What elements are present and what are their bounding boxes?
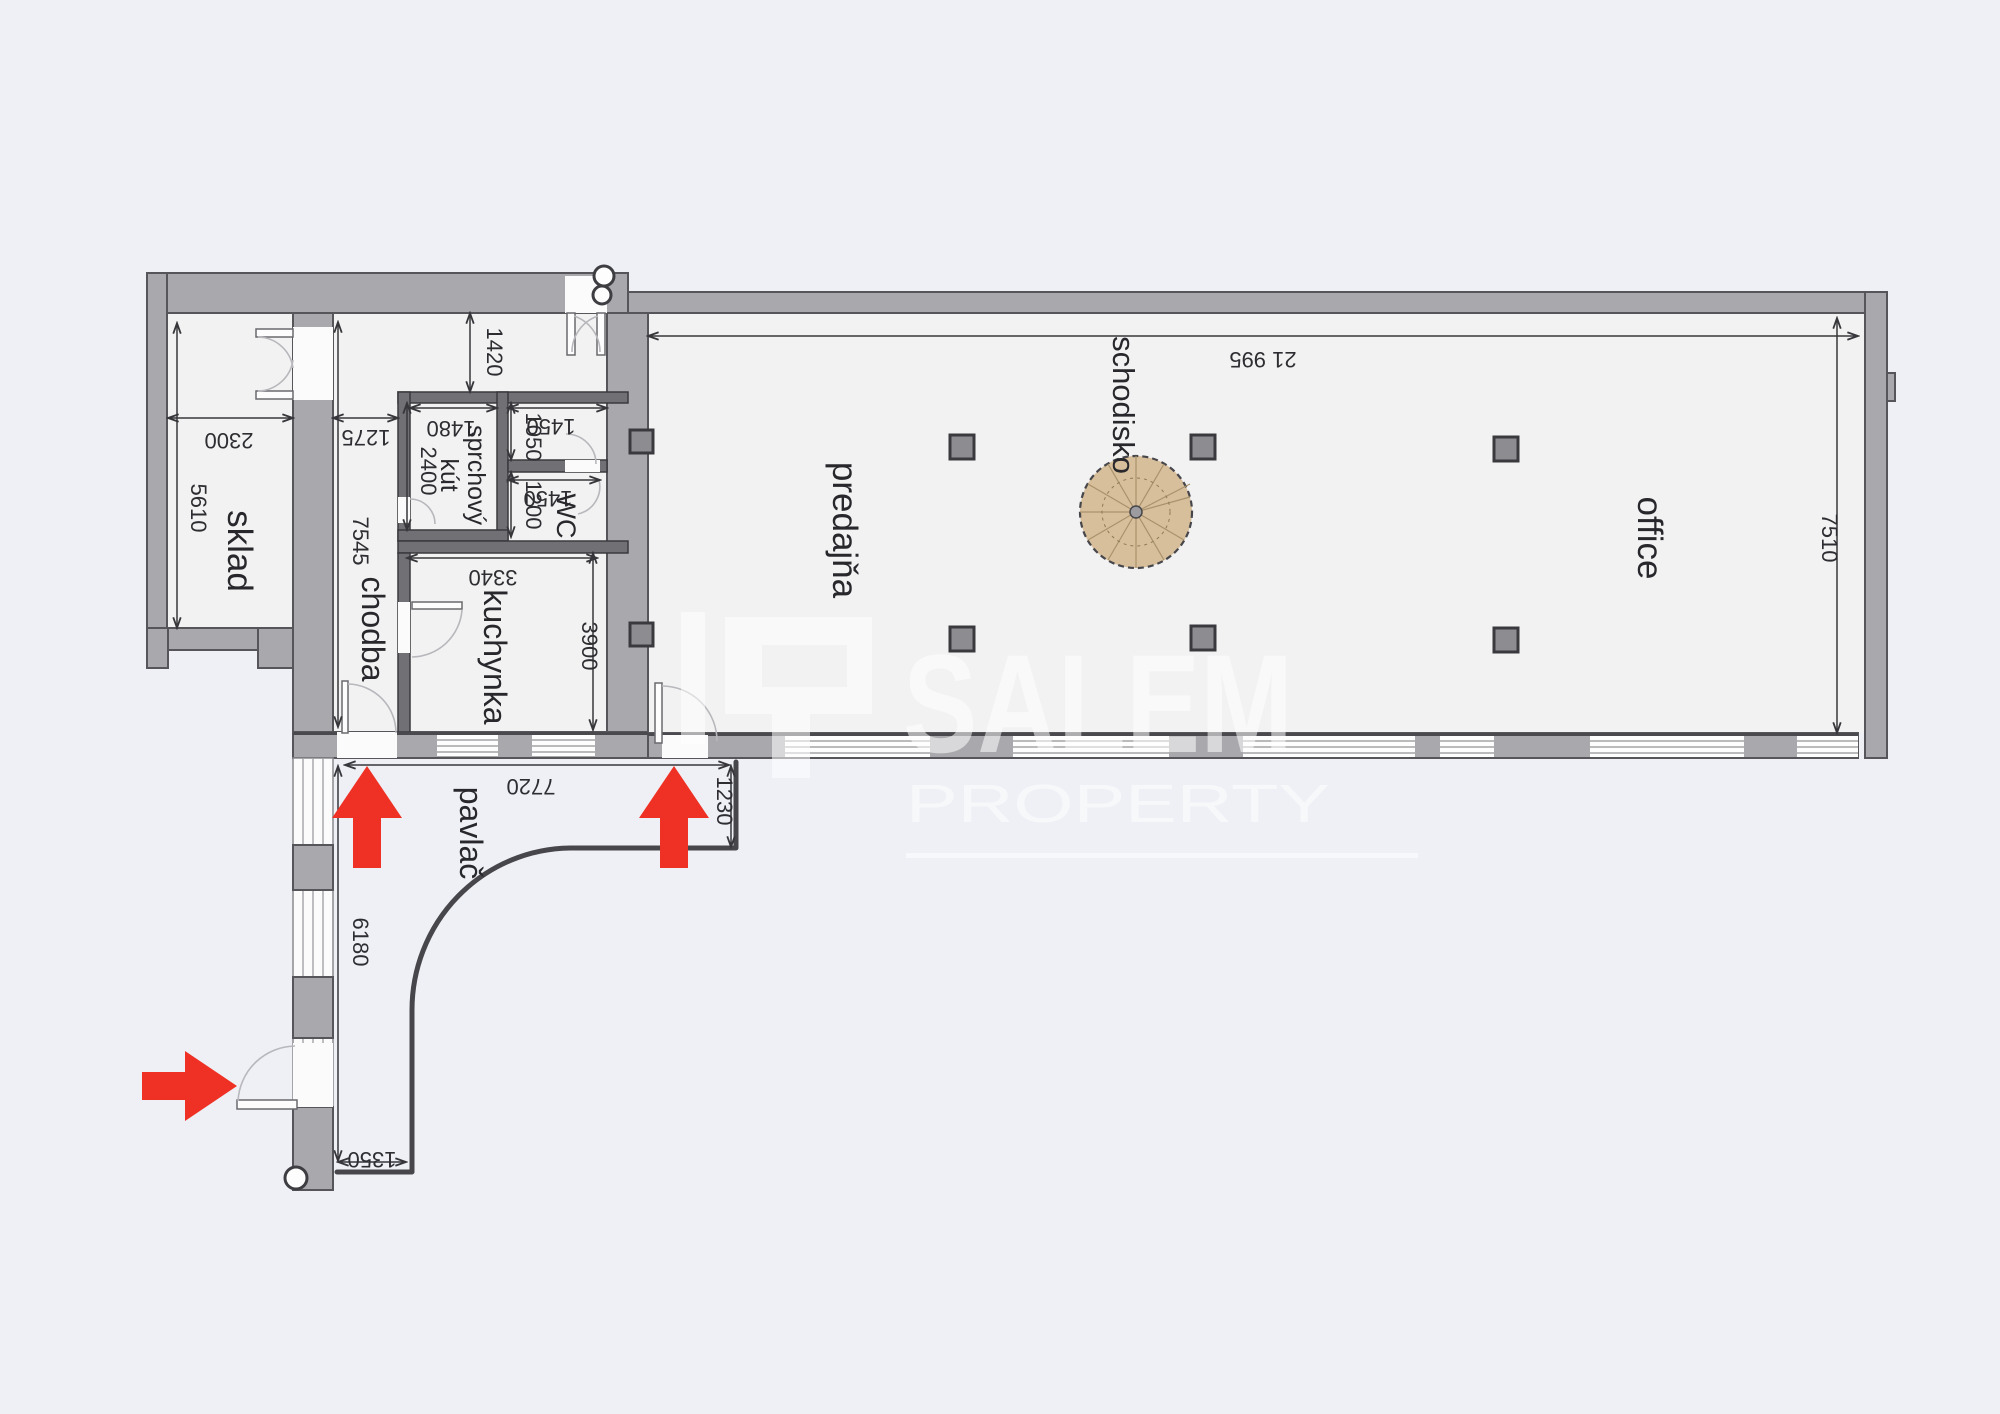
room-label-schodisko: schodisko: [1106, 336, 1141, 474]
room-label-sprchovy-kut-1: sprchový: [462, 425, 490, 526]
dim-kitchen-width: 3340: [469, 565, 518, 590]
room-label-predajna: predajňa: [825, 462, 864, 599]
dim-pavlac-side: 6180: [348, 918, 373, 967]
dim-wc-depth: 1200: [521, 481, 546, 530]
dim-pavlac-entry: 1230: [712, 777, 737, 826]
wall-sklad-foot-left: [147, 628, 168, 668]
watermark-subtitle: PROPERTY: [906, 774, 1330, 834]
room-label-sprchovy-kut-2: kút: [435, 458, 463, 491]
wall-top-left-block: [147, 273, 628, 313]
column-circle-icon: [593, 286, 611, 304]
room-label-office: office: [1630, 496, 1669, 579]
door-leaf-entrance: [237, 1100, 297, 1109]
door-leaf: [256, 391, 293, 399]
dim-hall-depth: 7510: [1817, 514, 1842, 563]
door-leaf: [412, 602, 462, 609]
dim-kitchen-depth: 3900: [577, 622, 602, 671]
door-gap-sklad: [293, 327, 333, 400]
door-leaf: [256, 329, 293, 337]
door-gap-anteroom: [565, 460, 600, 472]
window-kitchen-1: [437, 735, 498, 756]
door-leaf: [567, 313, 575, 355]
door-gap-shower: [398, 497, 410, 523]
dim-pavlac-bottom: 1350: [348, 1147, 397, 1172]
window-hall-5: [1590, 736, 1744, 757]
partition-kitchen-top: [398, 541, 628, 553]
wall-hall-divider: [607, 313, 648, 758]
column-pillar: [1494, 628, 1518, 652]
watermark-underline: [906, 853, 1418, 858]
dim-sklad-width: 2300: [205, 428, 254, 453]
watermark-brand: SALEM: [903, 625, 1293, 782]
railing-pier-2: [293, 977, 333, 1038]
door-leaf: [655, 683, 662, 743]
window-kitchen-2: [532, 735, 595, 756]
partition-shower-bottom: [398, 530, 508, 541]
dim-entry-passage: 1420: [482, 328, 507, 377]
wall-sklad-foot-right: [258, 628, 293, 668]
column-pillar: [1494, 437, 1518, 461]
pavlac-railing: [293, 758, 333, 1190]
room-label-kuchynka: kuchynka: [477, 589, 513, 724]
column-pilaster: [630, 623, 653, 646]
floor-plan: 2300 5610 1275 7545 1420 1480 2400 1450 …: [0, 0, 2000, 1414]
dim-chodba-depth: 7545: [348, 517, 373, 566]
dim-anteroom-depth: 1050: [521, 413, 546, 462]
door-gap-chodba: [337, 732, 397, 758]
column-pilaster: [630, 430, 653, 453]
wall-left: [147, 273, 167, 668]
wall-hall-top: [628, 292, 1887, 313]
door-leaf: [597, 313, 605, 355]
column-pillar: [950, 435, 974, 459]
room-label-pavlac: pavlač: [453, 787, 489, 880]
column-circle-icon: [594, 266, 614, 286]
window-hall-4: [1440, 736, 1494, 757]
dim-hall-length: 21 995: [1229, 347, 1296, 372]
entrance-door-gap: [293, 1043, 333, 1107]
door-gap-kuchynka: [398, 602, 410, 653]
column-circle-icon: [285, 1167, 307, 1189]
dim-chodba-width: 1275: [342, 425, 391, 450]
wall-right: [1865, 292, 1887, 758]
door-leaf: [342, 681, 348, 733]
dim-sklad-depth: 5610: [186, 484, 211, 533]
dim-pavlac-top: 7720: [507, 774, 556, 799]
partition-mid-vertical: [497, 392, 508, 541]
railing-pier-1: [293, 845, 333, 890]
watermark-logo-bar: [681, 612, 705, 744]
wall-right-notch: [1887, 373, 1895, 401]
column-pillar: [1191, 435, 1215, 459]
partition-top: [398, 392, 628, 403]
room-label-sklad: sklad: [220, 510, 259, 592]
window-hall-6: [1797, 736, 1858, 757]
room-label-chodba: chodba: [355, 577, 391, 682]
room-label-wc: WC: [551, 494, 581, 539]
